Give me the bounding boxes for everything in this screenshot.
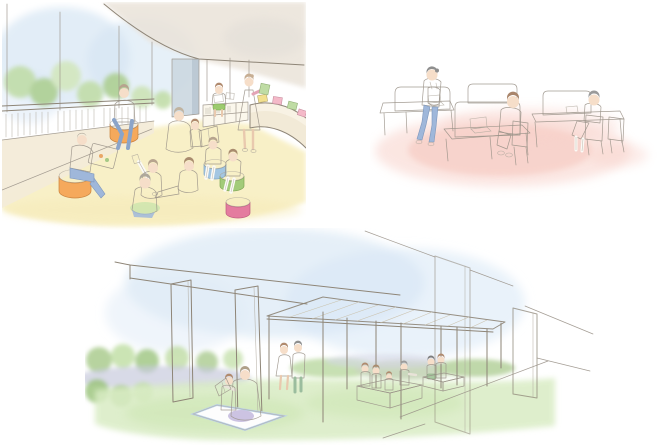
lawn-wash (95, 378, 555, 440)
held-book (259, 83, 270, 95)
scene-study-carrels (370, 55, 668, 205)
scene-park-pavilion (85, 228, 668, 445)
floor-wash (375, 107, 648, 187)
scene-terrace-reading (2, 2, 306, 230)
sky-wash (105, 228, 525, 358)
illustration-canvas (0, 0, 668, 445)
